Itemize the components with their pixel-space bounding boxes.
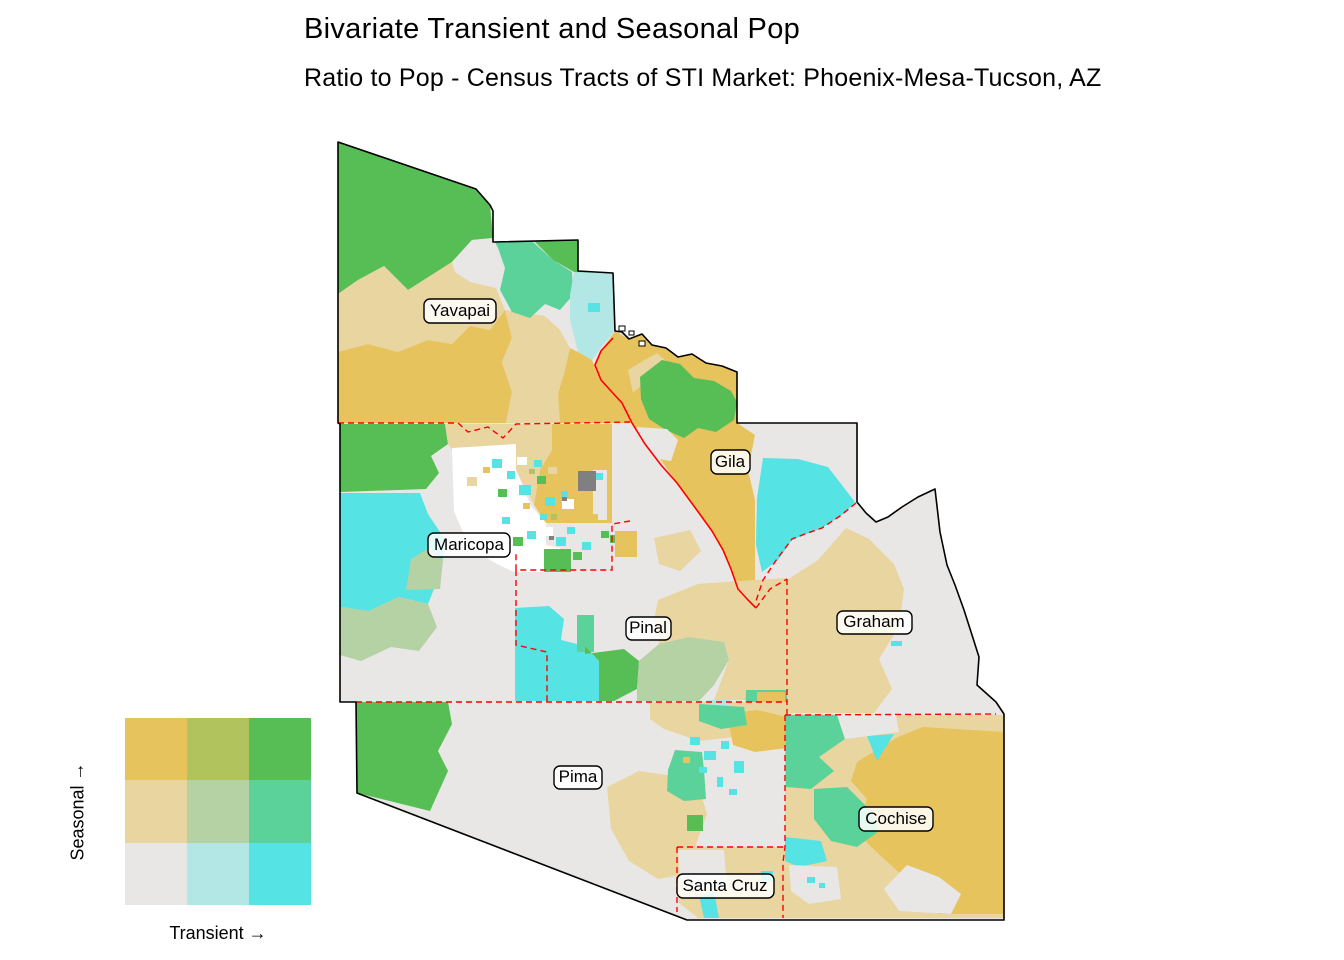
legend-cell-low-transient-high-seasonal	[125, 718, 187, 780]
legend-cell-low-transient-low-seasonal	[125, 843, 187, 905]
county-label-pima: Pima	[554, 766, 602, 789]
tract	[556, 537, 566, 546]
tract	[527, 531, 536, 539]
tract	[717, 777, 723, 787]
tract	[492, 459, 502, 468]
tract	[498, 489, 507, 497]
tract	[734, 761, 744, 773]
tract	[467, 477, 477, 486]
tract	[807, 877, 815, 883]
tract	[704, 751, 716, 760]
legend-cell-high-transient-low-seasonal	[249, 843, 311, 905]
county-label-text: Cochise	[865, 809, 926, 828]
tract	[596, 473, 603, 480]
tract	[588, 303, 600, 312]
tract	[483, 467, 490, 473]
county-label-text: Graham	[843, 612, 904, 631]
legend-cell-mid-transient-high-seasonal	[187, 718, 249, 780]
county-label-graham: Graham	[837, 611, 912, 634]
county-label-text: Pima	[559, 767, 598, 786]
tract	[591, 514, 598, 520]
tract	[340, 424, 448, 492]
tract	[513, 537, 523, 546]
legend-cell-low-transient-mid-seasonal	[125, 780, 187, 842]
tract	[687, 815, 703, 831]
tract	[540, 514, 547, 520]
tract	[562, 497, 567, 501]
county-tracts-yavapai	[338, 142, 632, 423]
tract	[548, 467, 557, 474]
tract	[601, 531, 609, 538]
county-label-text: Maricopa	[434, 535, 504, 554]
legend-y-axis-label: Seasonal →	[68, 762, 89, 860]
county-label-yavapai: Yavapai	[424, 299, 496, 323]
county-label-text: Santa Cruz	[682, 876, 767, 895]
county-label-pinal: Pinal	[626, 617, 671, 640]
tract	[502, 517, 510, 524]
tract	[573, 552, 582, 560]
tract	[582, 542, 591, 550]
bivariate-legend	[125, 718, 311, 905]
county-label-cochise: Cochise	[859, 807, 933, 831]
tract	[542, 527, 553, 536]
tract	[529, 469, 535, 474]
county-label-maricopa: Maricopa	[428, 533, 510, 557]
county-label-text: Gila	[715, 452, 746, 471]
tract	[683, 757, 690, 763]
tract	[519, 485, 531, 495]
tract	[577, 615, 594, 652]
boundary-islet	[619, 326, 625, 331]
tract	[477, 493, 489, 503]
tract	[523, 503, 530, 509]
tract	[549, 536, 554, 540]
tract	[545, 497, 555, 506]
boundary-islet	[629, 331, 634, 335]
legend-cell-mid-transient-low-seasonal	[187, 843, 249, 905]
legend-cell-high-transient-mid-seasonal	[249, 780, 311, 842]
tract	[615, 531, 637, 557]
county-label-gila: Gila	[711, 450, 750, 474]
tract	[819, 883, 825, 888]
tract	[729, 789, 737, 795]
county-label-text: Yavapai	[430, 301, 490, 320]
tract	[567, 527, 575, 534]
missing-data-tract	[578, 471, 596, 491]
tract	[690, 737, 700, 745]
tract	[721, 741, 729, 749]
legend-cell-high-transient-high-seasonal	[249, 718, 311, 780]
tract	[551, 514, 557, 520]
tract	[544, 549, 571, 572]
tract	[534, 460, 542, 467]
legend-y-axis-label-wrap: Seasonal →	[56, 718, 100, 905]
legend-cell-mid-transient-mid-seasonal	[187, 780, 249, 842]
tract	[561, 491, 568, 497]
tract	[891, 641, 902, 646]
county-label-santa-cruz: Santa Cruz	[677, 874, 774, 898]
tract	[517, 457, 527, 465]
tract	[537, 476, 546, 484]
tract	[507, 497, 516, 505]
county-label-text: Pinal	[629, 618, 667, 637]
boundary-islet	[639, 341, 645, 346]
tract	[507, 471, 515, 479]
legend-x-axis-label: Transient →	[125, 923, 311, 944]
tract	[699, 767, 707, 773]
